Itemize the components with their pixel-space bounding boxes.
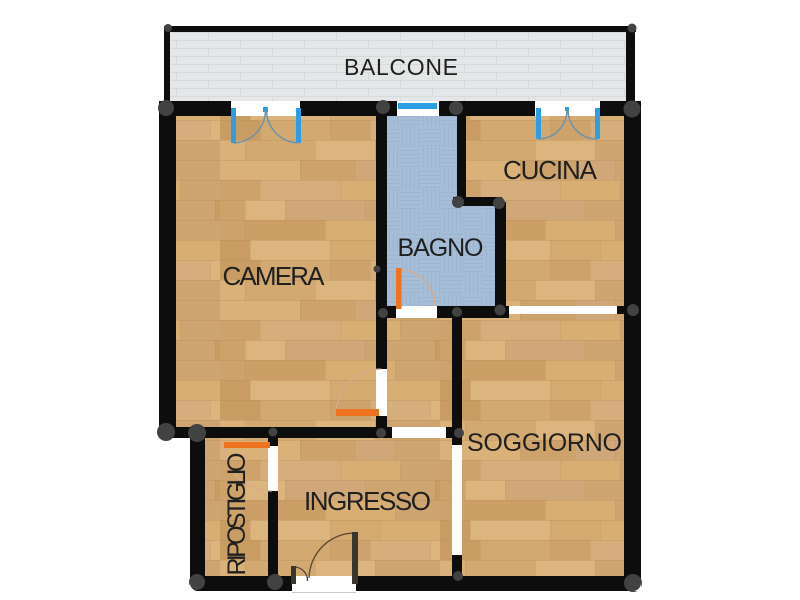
svg-text:BAGNO: BAGNO (398, 234, 484, 262)
svg-text:CUCINA: CUCINA (503, 155, 598, 185)
svg-text:BALCONE: BALCONE (344, 54, 458, 80)
svg-text:SOGGIORNO: SOGGIORNO (467, 429, 622, 457)
svg-text:RIPOSTIGLIO: RIPOSTIGLIO (223, 453, 251, 576)
svg-text:INGRESSO: INGRESSO (304, 486, 431, 516)
svg-text:CAMERA: CAMERA (223, 261, 326, 291)
